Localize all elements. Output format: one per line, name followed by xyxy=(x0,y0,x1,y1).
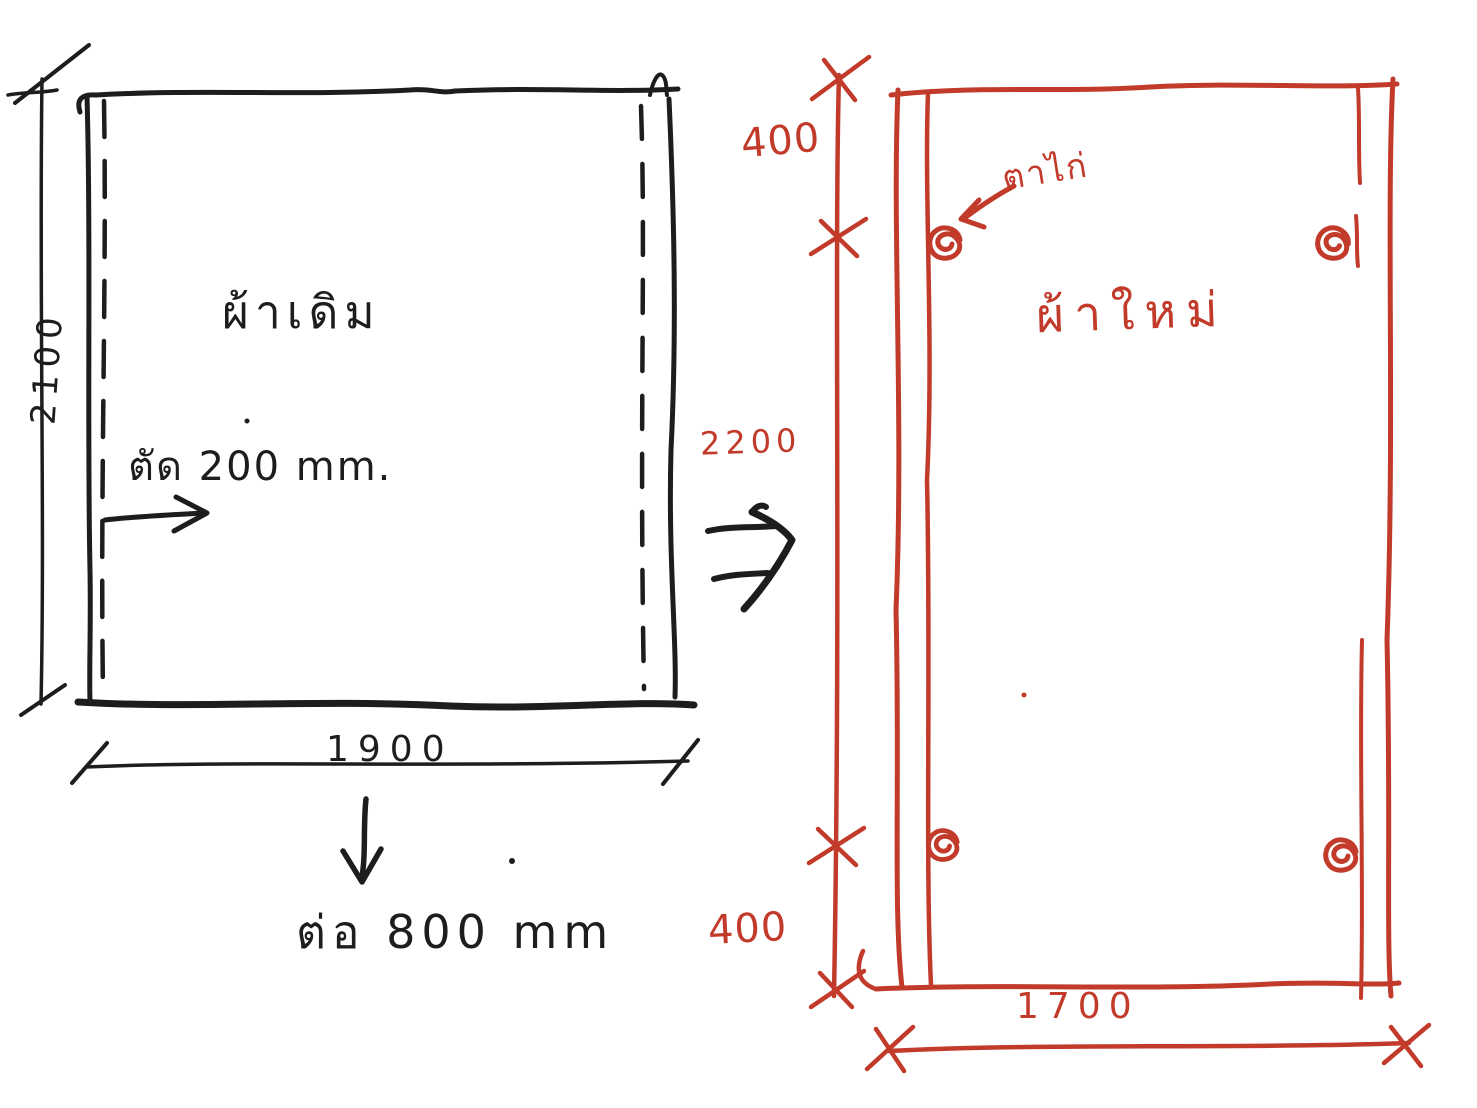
new-width-dimension-line xyxy=(889,1043,1409,1051)
original-fabric-top-edge xyxy=(79,89,678,112)
eyelet-bottom-right xyxy=(1326,840,1356,870)
fold-line-left xyxy=(102,101,105,694)
transform-arrow-tip xyxy=(752,506,766,512)
eyelet-top-right xyxy=(1314,224,1351,261)
ink-speck xyxy=(245,419,250,424)
ink-speck xyxy=(1022,693,1027,698)
fold-line-right xyxy=(641,106,644,689)
transform-arrow-top-line xyxy=(708,526,776,531)
new-fabric-figure xyxy=(809,57,1429,1071)
new-fabric-bottom-left-hook xyxy=(859,951,876,989)
new-fabric-right-outer-edge xyxy=(1387,79,1393,996)
cut-arrow-line xyxy=(105,513,204,520)
original-fabric-right-edge xyxy=(669,99,675,697)
cut-note-label: ตัด 200 mm. xyxy=(128,444,392,490)
new-fabric-right-inner-line xyxy=(1361,640,1362,998)
original-fabric-bottom-edge xyxy=(78,702,694,707)
eyelet-bottom-left xyxy=(928,831,957,860)
new-bottom-margin-dim-label: 400 xyxy=(707,904,789,954)
new-fabric-right-inner-line xyxy=(1358,88,1360,183)
new-top-margin-dim-label: 400 xyxy=(739,115,822,168)
ink-speck xyxy=(509,858,515,864)
width-dimension-tick-left xyxy=(72,743,107,783)
new-height-dimension-line xyxy=(834,75,839,996)
new-width-dim-label: 1700 xyxy=(1016,986,1140,1027)
down-arrow-line xyxy=(362,799,366,877)
original-fabric-label: ผ้าเดิม xyxy=(222,286,381,339)
original-fabric-left-edge xyxy=(87,96,90,701)
original-width-dim-label: 1900 xyxy=(326,729,454,770)
eyelet-top-left xyxy=(930,228,960,258)
extend-note-label: ต่อ 800 mm xyxy=(296,906,614,959)
new-fabric-left-outer-edge xyxy=(896,90,902,987)
transform-arrow-bottom-line xyxy=(714,573,768,579)
new-fabric-label: ผ้าใหม่ xyxy=(1035,283,1229,345)
new-fabric-right-inner-line xyxy=(1356,216,1358,266)
new-fabric-top-edge xyxy=(891,84,1397,95)
new-middle-dim-label: 2200 xyxy=(699,422,802,462)
handdrawn-fabric-sketch: ผ้าเดิม 2100 ตัด 200 mm. 1900 ต่อ 800 mm… xyxy=(0,0,1477,1108)
